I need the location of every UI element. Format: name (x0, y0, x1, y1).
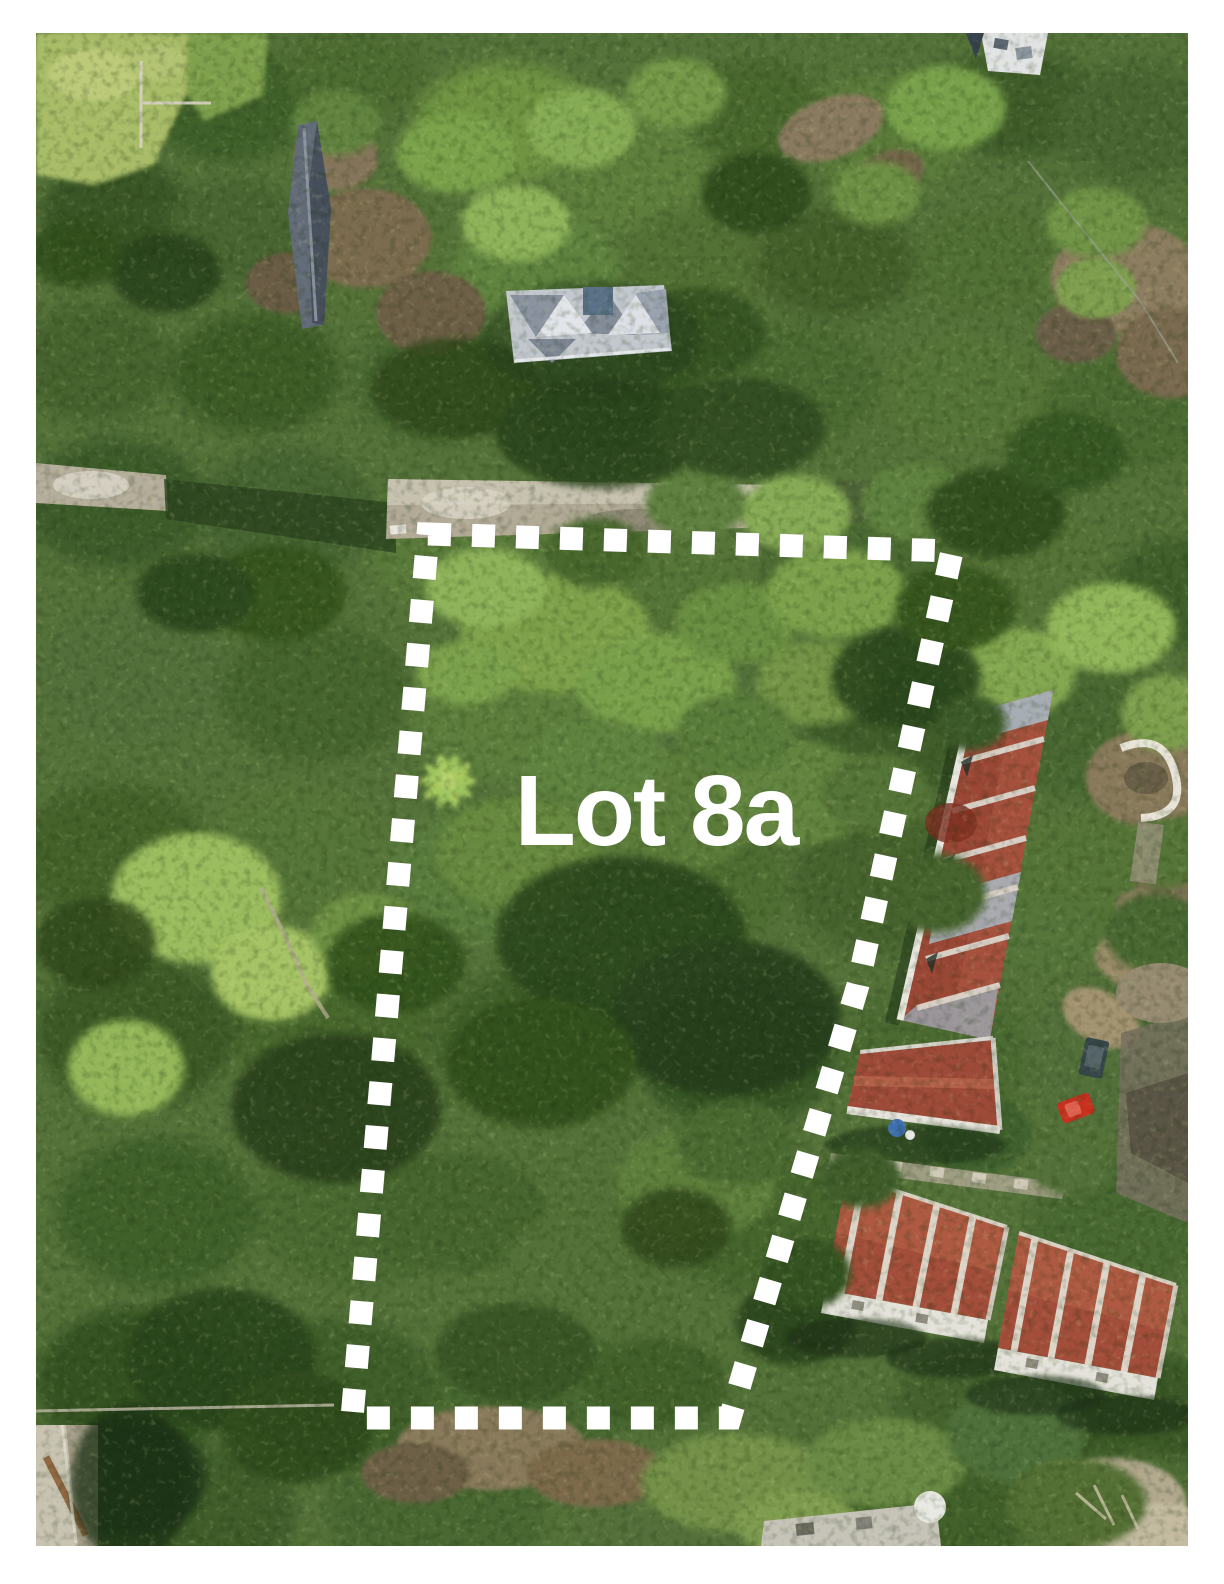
aerial-photo: Lot 8a (36, 33, 1188, 1546)
page: Lot 8a (0, 0, 1224, 1584)
aerial-photo-canvas: Lot 8a (36, 33, 1188, 1546)
lot-label: Lot 8a (515, 755, 801, 867)
